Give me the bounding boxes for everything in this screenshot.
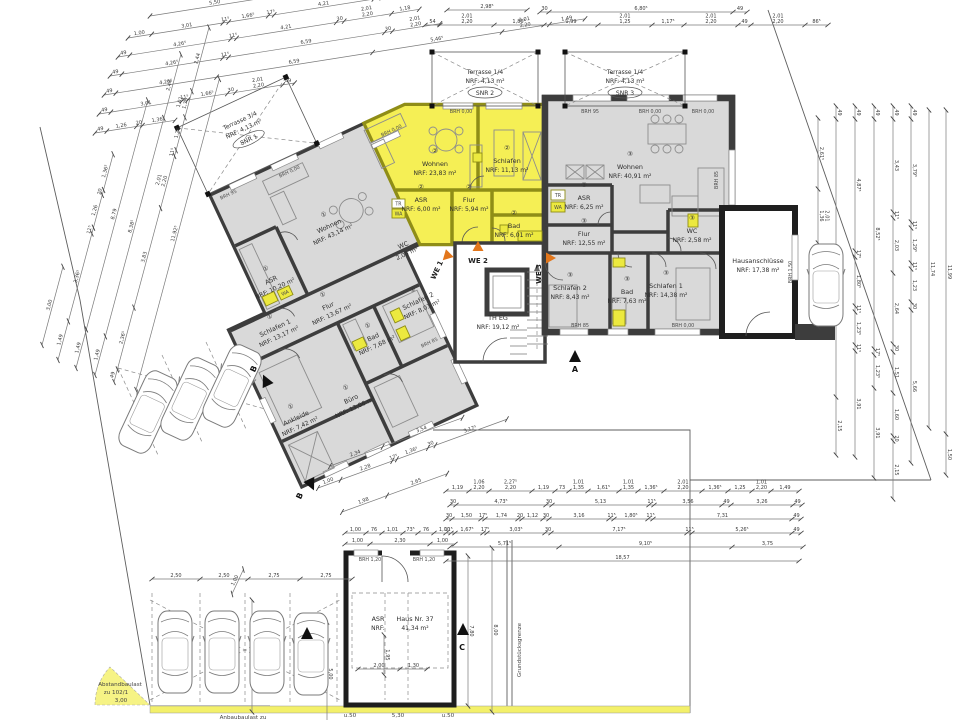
room-number-badge: ② — [418, 183, 424, 191]
dim-value: 1,50 — [946, 449, 952, 460]
room-number-badge: ② — [432, 147, 438, 155]
dim-chain: 304,73⁵305,1311⁵3,56493,2649 — [447, 499, 804, 507]
dim-value: 1,00 — [230, 574, 240, 587]
dim-value: 3,83 — [140, 251, 149, 263]
brh-text: BRH 0,00 — [450, 109, 472, 115]
room-name: Wohnen — [617, 163, 643, 171]
site-label-text: zu 102/1 — [104, 690, 129, 696]
brh-label: BRH 85 — [714, 171, 720, 189]
room-area: NRF: 23,83 m² — [414, 170, 458, 177]
dim-value: 49 — [855, 109, 861, 115]
room-area: NRF: 40,91 m² — [609, 173, 653, 180]
brh-label: BRH 1,50 — [788, 261, 794, 283]
terrace-area: NRF: 4,13 m² — [465, 78, 505, 85]
dim-value: 2,20 — [756, 485, 767, 491]
dim-value: 11,99 — [946, 265, 952, 279]
site-label-text: 3,00 — [115, 698, 128, 704]
dim-value: 1,29⁵ — [911, 239, 917, 252]
fixture-label: WA — [554, 205, 562, 211]
room-area: NRF: 11,13 m² — [486, 167, 530, 174]
site-label: Abstandbaulast — [98, 682, 142, 688]
dim-value: 4,73⁵ — [494, 499, 507, 505]
dim-value: 2,20 — [677, 485, 688, 491]
room-name: Hausanschlüsse — [732, 257, 783, 265]
asr-outbuilding — [346, 549, 454, 705]
room-area: NRF: 6,25 m² — [564, 204, 604, 211]
dim-value: 9,10⁵ — [639, 541, 652, 547]
dim-chain: 11,92⁵ — [130, 75, 222, 393]
dim-value: 3,16 — [573, 513, 584, 519]
dim-value: 4,26⁵ — [165, 59, 179, 67]
dim-value: 2,20 — [505, 485, 516, 491]
dim-value: 1,66⁵ — [200, 90, 214, 98]
room-name: Schlafen 1 — [649, 282, 683, 290]
brh-label: BRH 0,00 — [639, 109, 661, 115]
dim-value: 49 — [793, 527, 799, 533]
dim-value: 3,91 — [874, 427, 880, 438]
dim-value: 1,35 — [573, 485, 584, 491]
dim-value: 49 — [112, 69, 119, 76]
dim-value: 49 — [737, 6, 743, 12]
dim-value: 1,00 — [439, 527, 450, 533]
brh-label: BRH 1,20 — [413, 557, 435, 563]
dim-value: 1,23⁵ — [855, 322, 861, 335]
site-label-text: 5,30 — [392, 713, 405, 719]
brh-text: BRH 0,00 — [672, 323, 694, 329]
dim-value: 3,79⁵ — [911, 164, 917, 177]
dim-value: 17⁵ — [389, 453, 399, 462]
section-letter: A — [572, 365, 579, 374]
dim-value: 2,64 — [893, 303, 899, 314]
dim-value: 1,30 — [408, 663, 419, 669]
room-number-badge: ② — [466, 183, 472, 191]
room-name: Haus Nr. 37 — [396, 615, 433, 623]
brh-text: BRH 85 — [571, 323, 589, 329]
dim-value: 3,91 — [855, 398, 861, 409]
dim-value: 2,20 — [772, 19, 783, 25]
dim-value: 3,17⁵ — [463, 425, 477, 435]
dim-value: 1,36 — [818, 210, 824, 221]
room-name: Flur — [578, 230, 591, 238]
dim-value: 3,75 — [762, 541, 773, 547]
site-label: 3,00 — [115, 698, 128, 704]
dim-value: 5,46⁵ — [430, 35, 444, 43]
dim-value: 2,75 — [320, 573, 331, 579]
room-number-badge: ③ — [624, 275, 630, 283]
dim-chain: 494,26⁵11⁵6,59302,012,20 — [106, 12, 443, 79]
room-area: NRF: 12,55 m² — [563, 240, 607, 247]
site-label: zu 102/1 — [104, 690, 129, 696]
terrace-snr-tag: SNR 3 — [616, 90, 634, 97]
dim-value: 3,00 — [45, 299, 54, 311]
dim-value: 11⁵ — [893, 211, 899, 219]
dim-value: 1,00 — [352, 538, 363, 544]
fixture — [473, 153, 482, 162]
dim-chain: 5,71⁵9,10⁵3,75 — [447, 541, 805, 549]
dim-chain: 498,52⁵17⁵1,23⁵3,91 — [872, 103, 880, 480]
dim-value: 2,50 — [170, 573, 181, 579]
room-number-badge: ③ — [627, 150, 633, 158]
terrace: Terrasse 1/4NRF: 4,13 m²SNR 2 — [430, 50, 541, 109]
dim-chain: 306,80⁵49 — [537, 6, 749, 14]
room-number-badge: ③ — [581, 181, 587, 189]
car-icon — [807, 244, 845, 326]
brh-text: BRH 1,50 — [788, 261, 794, 283]
room-name: ASR — [372, 615, 385, 623]
dim-value: 2,44 — [193, 52, 202, 64]
room-name: Schlafen 2 — [553, 284, 587, 292]
entrance-label: WE 2 — [468, 257, 488, 265]
room-area: NRF: 7,63 m² — [607, 298, 647, 305]
dim-value: 73⁵ — [406, 527, 414, 533]
dim-value: 1,12 — [527, 513, 538, 519]
dim-value: 1,67⁵ — [460, 527, 473, 533]
dim-value: 30 — [541, 6, 547, 12]
dim-value: 1,00 — [350, 527, 361, 533]
dim-value: 30 — [545, 527, 551, 533]
room-name: Wohnen — [422, 160, 448, 168]
dim-chain: 11⁵1,67⁵17⁵3,03⁵307,17⁵11⁵5,26⁵49 — [443, 527, 803, 535]
brh-label: BRH 0,00 — [672, 323, 694, 329]
dim-value: 1,26 — [115, 122, 127, 130]
dim-value: 1,49 — [93, 349, 102, 361]
car-icon — [156, 611, 194, 693]
site-label-text: Anbaubaulast zu — [220, 715, 267, 720]
dim-chain: 11,74 — [927, 107, 935, 430]
fixture-label: TR — [554, 193, 562, 199]
room-name: Flur — [463, 196, 476, 204]
room-area: NRF: 2,58 m² — [672, 237, 712, 244]
dim-value: 2,20 — [361, 11, 373, 19]
site-label-text: Grundstücksgrenze — [517, 622, 523, 677]
room-name: TH EG — [487, 314, 508, 322]
dim-value: 1,99 — [565, 19, 576, 25]
terrace-name: Terrasse 1/4 — [606, 69, 644, 76]
dim-value: 30 — [546, 499, 552, 505]
dim-value: 2,20 — [410, 21, 422, 29]
dim-value: 49 — [911, 109, 917, 115]
fixture: TR — [551, 190, 565, 200]
room-number-badge: ③ — [689, 214, 695, 222]
dim-value: 54 — [429, 19, 435, 25]
dim-value: 2,03 — [893, 240, 899, 251]
dim-value: 30 — [911, 303, 917, 309]
dim-value: 3,01 — [181, 22, 193, 30]
room-number-badge: ② — [511, 209, 517, 217]
room-name: WC — [687, 227, 698, 235]
brh-label: BRH 85 — [571, 323, 589, 329]
dim-chain: 1,002,301,00 — [342, 538, 457, 546]
dim-value: 86⁵ — [812, 19, 820, 25]
brh-label: BRH 95 — [581, 109, 599, 115]
brh-text: BRH 0,00 — [639, 109, 661, 115]
dim-chain: 1,003,0111⁵1,66⁵17⁵4,21302,143,071,18 — [125, 0, 536, 41]
dim-value: 30 — [227, 87, 234, 94]
dim-value: 11⁵ — [911, 221, 917, 229]
site-label: Anbaubaulast zu — [220, 715, 267, 720]
dim-value: 1,61⁵ — [597, 485, 610, 491]
dim-value: 1,00 — [133, 30, 145, 38]
dim-value: 30 — [384, 26, 391, 33]
dim-value: 1,23 — [911, 280, 917, 291]
dim-value: 1,80⁵ — [855, 275, 861, 288]
site-label-text: Abstandbaulast — [98, 682, 142, 688]
dim-chain: 493,4311⁵2,032,64301,511,60202,15 — [891, 103, 899, 501]
dim-value: 1,19 — [538, 485, 549, 491]
dim-value: 1,51 — [893, 367, 899, 378]
dim-value: 49 — [285, 78, 292, 85]
dim-chain: 492,36⁵3,832,012,2011⁵1,261,011,352,44 — [102, 22, 212, 385]
dim-value: 73 — [559, 485, 565, 491]
dim-value: 1,49 — [779, 485, 790, 491]
dim-value: 2,50 — [218, 573, 229, 579]
dim-value: 2,20 — [705, 19, 716, 25]
dim-chain: 1,00 — [226, 565, 247, 598]
room-number-badge: ③ — [581, 217, 587, 225]
dim-value: 4,21 — [318, 0, 330, 8]
dim-value: 1,25 — [619, 19, 630, 25]
dim-value: 17⁵ — [874, 348, 880, 356]
room-number-badge: ③ — [567, 271, 573, 279]
dim-value: 1,18 — [399, 5, 411, 13]
dim-value: 1,50 — [461, 513, 472, 519]
dim-value: 7,31 — [717, 513, 728, 519]
room-number-badge: ③ — [663, 269, 669, 277]
room-area: NRF: 6,00 m² — [401, 206, 441, 213]
brh-text: BRH 85 — [714, 171, 720, 189]
dim-chain: 18,57 — [443, 555, 801, 563]
dim-value: 8,79 — [110, 208, 119, 220]
dim-value: 30 — [446, 513, 452, 519]
dim-chain: 493,79⁵11⁵1,29⁵11⁵1,23305,66 — [909, 103, 917, 465]
dim-value: 49 — [109, 371, 116, 379]
floor-plan-page: Terrasse 3/4NRF: 4,13 m²SNR 1Terrasse 1/… — [0, 0, 959, 720]
dim-value: 1,60 — [893, 409, 899, 420]
room-name: Schlafen — [493, 157, 521, 165]
dim-value: 20 — [893, 435, 899, 441]
dim-value: 49 — [120, 50, 127, 57]
entrance-label: WE 1 — [429, 259, 445, 280]
dim-chain: 1,191,062,202,27⁵2,201,19731,011,351,61⁵… — [443, 479, 801, 493]
dim-value: 49 — [723, 499, 729, 505]
dim-value: 1,26 — [91, 204, 100, 216]
dim-chain: 1,498,79 — [70, 96, 151, 371]
dim-value: 4,21 — [280, 24, 292, 32]
dim-value: 3,43 — [893, 160, 899, 171]
dim-value: 2,15 — [836, 420, 842, 431]
room-area: NRF: 8,43 m² — [550, 294, 590, 301]
dim-value: 1,00 — [437, 538, 448, 544]
dim-chain: 8,00 — [490, 545, 498, 714]
dim-value: 76 — [423, 527, 429, 533]
dim-value: 1,17⁵ — [661, 19, 674, 25]
dim-chain: 1,00761,0173⁵761,00 — [342, 527, 457, 535]
section-marker-icon — [569, 350, 581, 362]
dim-chain: 494,87⁵17⁵1,80⁵11⁵1,23⁵11⁵3,91 — [853, 103, 861, 459]
dim-value: 5,26⁵ — [735, 527, 748, 533]
brh-label: BRH 1,20 — [359, 557, 381, 563]
dim-value: 30 — [427, 440, 435, 448]
dim-value: 1,36⁵ — [708, 485, 721, 491]
dim-value: 49 — [893, 109, 899, 115]
dim-value: 2,20 — [473, 485, 484, 491]
dim-chain: 1,493,36⁵11⁵1,26201,36⁵ — [52, 150, 116, 363]
dim-value: 3,03⁵ — [509, 527, 522, 533]
dim-value: 2,15 — [893, 464, 899, 475]
dim-value: 49 — [794, 499, 800, 505]
car-icon — [292, 613, 330, 695]
terrace-name: Terrasse 1/4 — [466, 69, 504, 76]
dim-value: 6,80⁵ — [634, 6, 647, 12]
dim-value: 49 — [741, 19, 747, 25]
dim-value: 17⁵ — [855, 250, 861, 258]
site-label: u.50 — [344, 713, 357, 719]
dim-value: 2,30 — [394, 538, 405, 544]
dim-value: 1,66⁵ — [241, 12, 255, 20]
dim-value: 4,87⁵ — [855, 178, 861, 191]
section-letter: B — [294, 491, 305, 500]
dim-value: 1,95 — [384, 649, 390, 660]
dim-value: 49 — [101, 107, 108, 114]
dim-value: 1,01 — [387, 527, 398, 533]
dim-value: 5,71⁵ — [498, 541, 511, 547]
dim-value: 1,74 — [496, 513, 507, 519]
dim-chain: 1,498,38⁵2,44 — [89, 50, 184, 378]
dim-value: 1,80⁵ — [624, 513, 637, 519]
dim-value: 6,59 — [288, 58, 300, 66]
dim-chain: 11,991,50 — [944, 107, 952, 477]
dim-value: 1,49 — [74, 342, 83, 354]
fixture — [613, 310, 625, 326]
brh-text: BRH 0,00 — [692, 109, 714, 115]
room-name: Bad — [508, 222, 520, 230]
room-number-badge: ② — [504, 144, 510, 152]
dim-value: 2,98⁵ — [480, 4, 493, 10]
dim-value: 2,61⁵ — [818, 147, 824, 160]
dim-value: 49 — [836, 109, 842, 115]
dim-chain: 2,502,502,752,75 — [149, 573, 354, 581]
dim-value: 11⁵ — [855, 305, 861, 313]
dim-value: 2,20 — [253, 82, 265, 90]
dim-chain: 301,5017⁵1,74201,12303,1611⁵1,80⁵11⁵7,31… — [443, 513, 803, 521]
terrace-area: NRF: 4,13 m² — [605, 78, 645, 85]
room-area: NRF: 6,01 m² — [494, 232, 534, 239]
site-label: 5,30 — [392, 713, 405, 719]
dim-value: 6,59 — [300, 38, 312, 46]
brh-label: BRH 0,00 — [450, 109, 472, 115]
site-label-text: u.50 — [344, 713, 357, 719]
car-icon — [203, 611, 241, 693]
dim-value: 1,36⁵ — [644, 485, 657, 491]
dim-value: 49 — [106, 88, 113, 95]
dim-value: 76 — [371, 527, 377, 533]
room-area: NRF: 17,38 m² — [737, 267, 781, 274]
dim-value: 5,13 — [595, 499, 606, 505]
dim-chain: 493,0111⁵1,66⁵302,012,2049 — [95, 71, 298, 116]
room-area: NRF: — [371, 625, 385, 632]
dim-value: 30 — [336, 16, 343, 23]
terrace-snr-tag: SNR 2 — [476, 90, 494, 97]
dim-value: 11,74 — [929, 262, 935, 276]
dim-value: 2,20 — [461, 19, 472, 25]
site-label-text: u.50 — [442, 713, 455, 719]
section-marker-icon — [457, 623, 469, 635]
dim-value: 49 — [97, 126, 104, 133]
dim-value: 5,66 — [911, 381, 917, 392]
dim-value: 1,19 — [452, 485, 463, 491]
dim-value: 3,56 — [682, 499, 693, 505]
dim-value: 5,50 — [209, 0, 221, 7]
dim-value: 2,75 — [268, 573, 279, 579]
dim-value: 49 — [793, 513, 799, 519]
dim-value: 30 — [450, 499, 456, 505]
dim-chain: 542,012,201,86⁵1,992,011,251,17⁵2,012,20… — [422, 13, 830, 27]
dim-value: 1,23⁵ — [874, 365, 880, 378]
section-letter: C — [459, 643, 465, 652]
dim-value: 1,25 — [734, 485, 745, 491]
dim-value: 18,57 — [615, 555, 629, 561]
dim-value: 1,49 — [56, 334, 65, 346]
brh-text: BRH 95 — [581, 109, 599, 115]
site-label: u.50 — [442, 713, 455, 719]
dim-value: 8,00 — [492, 624, 498, 635]
dim-value: 11⁵ — [911, 262, 917, 270]
dim-value: 11,92⁵ — [170, 225, 180, 242]
dim-value: 7,17⁵ — [612, 527, 625, 533]
dim-value: 49 — [874, 109, 880, 115]
brh-text: BRH 1,20 — [413, 557, 435, 563]
car-icon — [248, 611, 286, 693]
dim-value: 2,00 — [373, 663, 384, 669]
dim-value: 11⁵ — [855, 344, 861, 352]
site-label: Grundstücksgrenze — [517, 622, 523, 677]
dim-value: 1,26 — [173, 127, 182, 139]
dim-chain: 2,98⁵ — [444, 4, 529, 12]
brh-text: BRH 1,20 — [359, 557, 381, 563]
dim-value: 8,52⁵ — [874, 227, 880, 240]
room-area: NRF: 14,38 m² — [645, 292, 689, 299]
dim-value: 1,36⁵ — [404, 446, 418, 456]
dim-value: 3,26 — [756, 499, 767, 505]
entrance-label: WE 3 — [535, 264, 543, 284]
floor-plan-drawing: Terrasse 3/4NRF: 4,13 m²SNR 1Terrasse 1/… — [0, 0, 959, 720]
dim-value: 30 — [543, 513, 549, 519]
room-area: 41,34 m² — [401, 625, 429, 632]
dim-value: 1,86⁵ — [512, 19, 525, 25]
room-name: Bad — [621, 288, 633, 296]
room-name: ASR — [578, 194, 591, 202]
room-area: NRF: 5,94 m² — [449, 206, 489, 213]
fixture — [613, 258, 625, 267]
dim-chain: 491,26201,36⁵ — [92, 114, 178, 135]
dim-value: 4,26⁵ — [173, 40, 187, 48]
room-name: ASR — [415, 196, 428, 204]
fixture: WA — [551, 202, 565, 212]
brh-label: BRH 0,00 — [692, 109, 714, 115]
dim-value: 1,35 — [623, 485, 634, 491]
dim-value: 30 — [893, 345, 899, 351]
room-area: NRF: 19,12 m² — [477, 324, 521, 331]
